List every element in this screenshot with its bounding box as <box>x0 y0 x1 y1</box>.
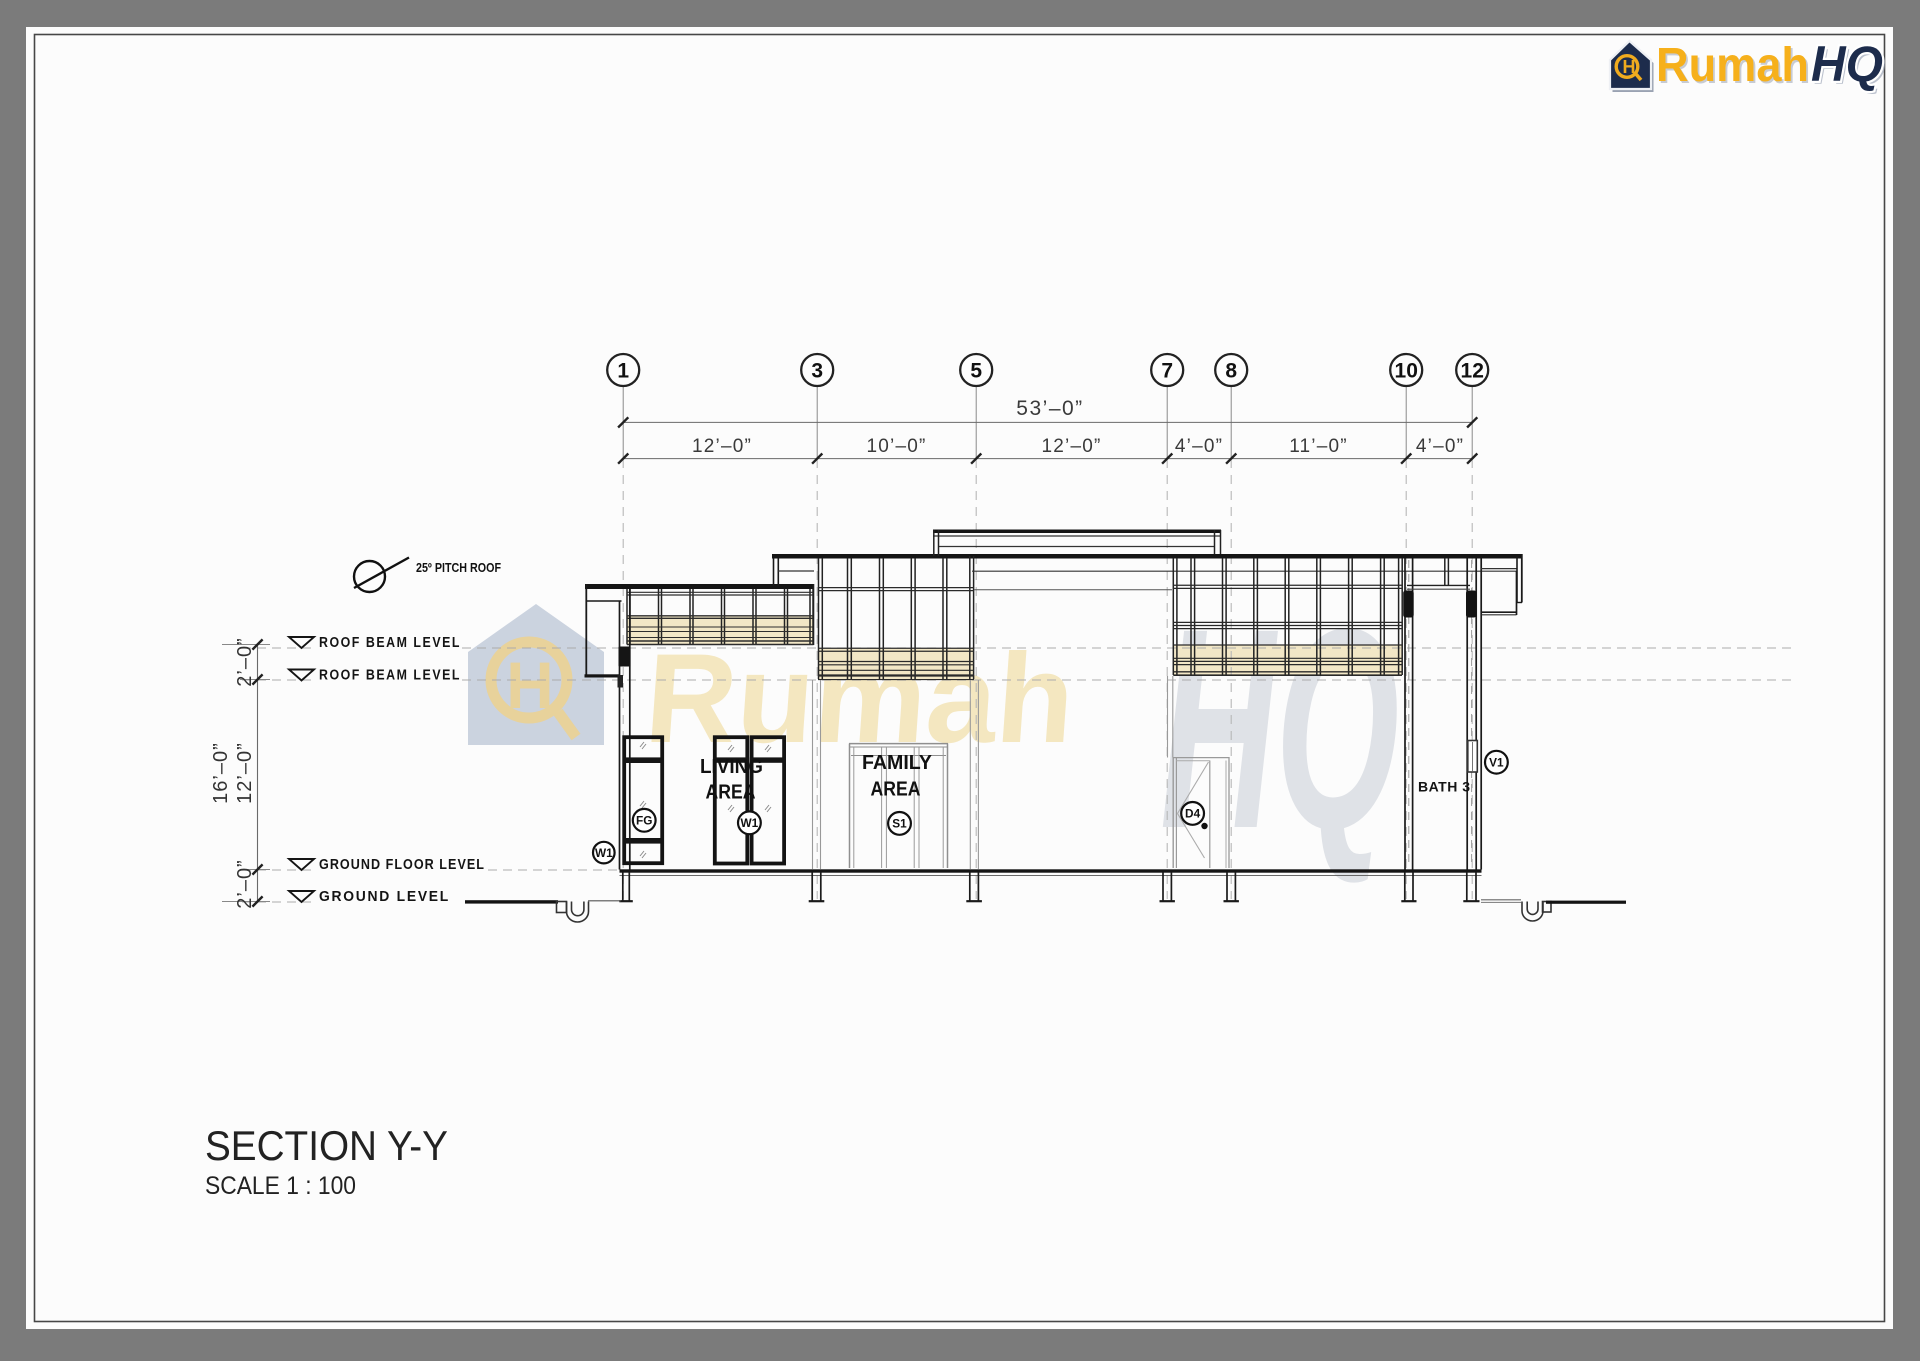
svg-text:SCALE 1 : 100: SCALE 1 : 100 <box>205 1172 356 1200</box>
svg-text:H: H <box>506 648 554 722</box>
svg-text:12: 12 <box>1461 360 1484 383</box>
svg-text:11’–0”: 11’–0” <box>1289 436 1348 457</box>
svg-text:SECTION Y-Y: SECTION Y-Y <box>205 1122 448 1169</box>
svg-text:H: H <box>1623 57 1636 77</box>
svg-text:GROUND FLOOR LEVEL: GROUND FLOOR LEVEL <box>319 857 485 873</box>
svg-text:7: 7 <box>1161 360 1173 383</box>
svg-text:2’–0”: 2’–0” <box>234 637 256 686</box>
svg-text:53’–0”: 53’–0” <box>1016 397 1083 420</box>
svg-text:LIVING: LIVING <box>700 755 763 778</box>
svg-text:W1: W1 <box>741 816 759 830</box>
svg-text:W1: W1 <box>595 846 613 860</box>
svg-text:25º PITCH ROOF: 25º PITCH ROOF <box>416 560 501 575</box>
svg-text:4’–0”: 4’–0” <box>1175 436 1223 457</box>
svg-text:HQ: HQ <box>1160 569 1399 887</box>
svg-text:10’–0”: 10’–0” <box>866 436 926 457</box>
svg-text:12’–0”: 12’–0” <box>234 742 256 804</box>
svg-text:Rumah: Rumah <box>1656 39 1809 92</box>
svg-text:FG: FG <box>636 814 652 828</box>
svg-text:16’–0”: 16’–0” <box>210 742 232 804</box>
svg-text:ROOF BEAM LEVEL: ROOF BEAM LEVEL <box>319 668 461 684</box>
svg-text:12’–0”: 12’–0” <box>692 436 752 457</box>
svg-text:HQ: HQ <box>1811 36 1883 92</box>
svg-text:3: 3 <box>811 360 823 383</box>
svg-text:GROUND LEVEL: GROUND LEVEL <box>319 889 450 905</box>
svg-text:BATH 3: BATH 3 <box>1418 779 1471 795</box>
svg-text:12’–0”: 12’–0” <box>1041 436 1101 457</box>
svg-text:8: 8 <box>1225 360 1237 383</box>
svg-text:4’–0”: 4’–0” <box>1416 436 1464 457</box>
svg-text:2’–0”: 2’–0” <box>234 859 256 908</box>
svg-text:S1: S1 <box>892 817 907 831</box>
svg-text:AREA: AREA <box>871 778 921 801</box>
svg-text:V1: V1 <box>1489 755 1504 769</box>
svg-text:ROOF BEAM LEVEL: ROOF BEAM LEVEL <box>319 635 461 651</box>
svg-text:5: 5 <box>970 360 982 383</box>
svg-text:FAMILY: FAMILY <box>862 751 932 774</box>
svg-text:AREA: AREA <box>706 781 756 804</box>
svg-text:1: 1 <box>617 360 629 383</box>
svg-text:D4: D4 <box>1185 807 1201 821</box>
svg-text:10: 10 <box>1395 360 1418 383</box>
